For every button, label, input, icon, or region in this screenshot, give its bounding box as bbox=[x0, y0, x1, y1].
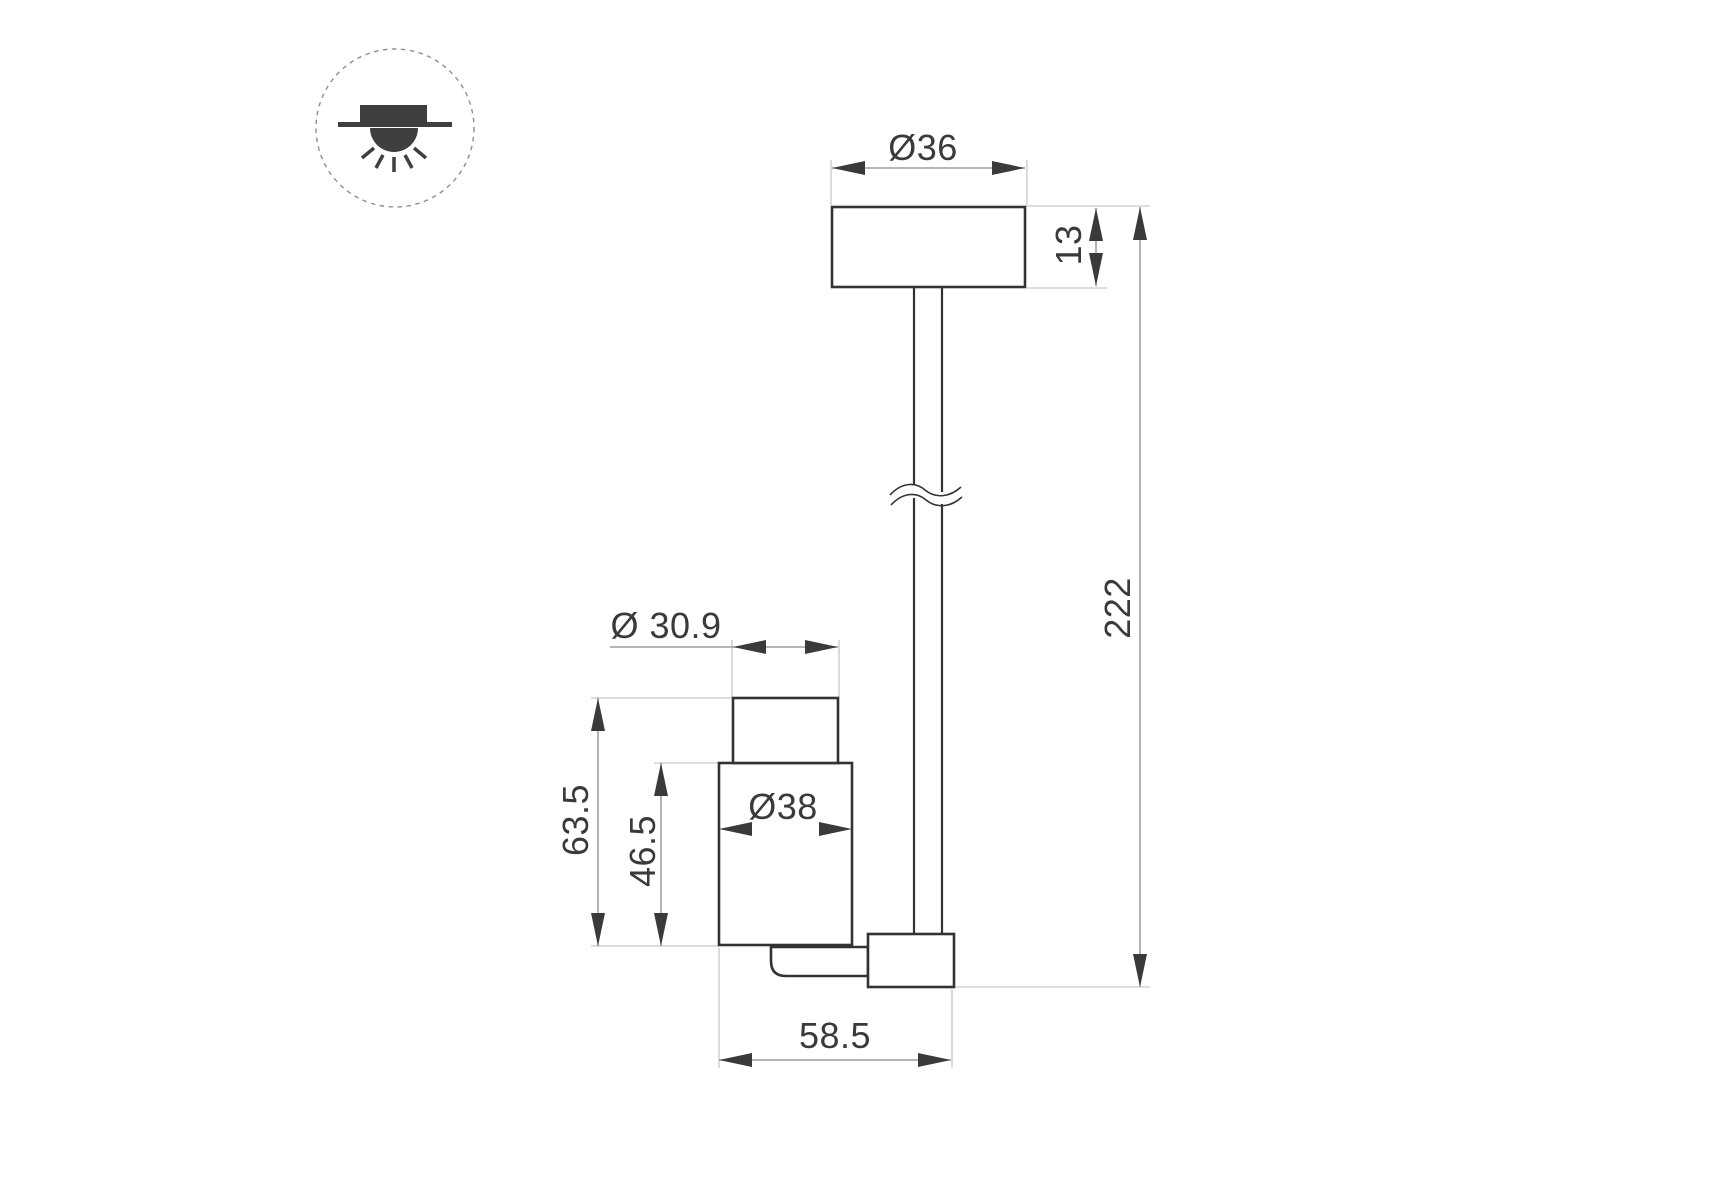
label-canopy-height: 13 bbox=[1048, 224, 1089, 265]
arrow-body-h-top bbox=[654, 763, 668, 796]
arrow-arm-left bbox=[719, 1053, 752, 1067]
fixture-outline bbox=[719, 207, 1025, 987]
arrow-head-h-top bbox=[591, 698, 605, 731]
connector-block bbox=[868, 934, 954, 987]
break-symbol bbox=[890, 484, 962, 505]
arrow-head-h-bottom bbox=[591, 913, 605, 946]
label-overall-length: 222 bbox=[1097, 577, 1138, 639]
label-neck-diameter: Ø 30.9 bbox=[610, 605, 721, 646]
arrow-canopy-h-top bbox=[1089, 208, 1103, 241]
surface-mount-ceiling-light-icon bbox=[316, 49, 474, 207]
label-body-height: 46.5 bbox=[622, 815, 663, 887]
arrow-overall-bottom bbox=[1133, 954, 1147, 987]
label-arm-length: 58.5 bbox=[799, 1015, 871, 1056]
arrow-arm-right bbox=[918, 1053, 951, 1067]
arrow-overall-top bbox=[1133, 207, 1147, 240]
arrow-body-h-bottom bbox=[654, 913, 668, 946]
drawing-page: Ø36 13 222 Ø 30.9 Ø38 63.5 46.5 58.5 bbox=[0, 0, 1715, 1200]
icon-mount-box bbox=[360, 105, 427, 123]
icon-ceiling-line bbox=[338, 122, 452, 127]
ceiling-canopy bbox=[832, 207, 1025, 287]
arrow-neck-dia-left bbox=[733, 640, 766, 654]
arrow-neck-dia-right bbox=[805, 640, 838, 654]
technical-drawing-canvas: Ø36 13 222 Ø 30.9 Ø38 63.5 46.5 58.5 bbox=[0, 0, 1715, 1200]
elbow-arm bbox=[771, 947, 868, 976]
arrow-canopy-h-bottom bbox=[1089, 253, 1103, 286]
lamp-head-neck bbox=[733, 698, 838, 763]
icon-lamp-dome bbox=[370, 128, 418, 152]
label-head-total-height: 63.5 bbox=[555, 784, 596, 856]
arrow-canopy-dia-right bbox=[992, 161, 1025, 175]
suspension-rod bbox=[914, 287, 942, 936]
arrow-canopy-dia-left bbox=[832, 161, 865, 175]
label-canopy-diameter: Ø36 bbox=[888, 127, 958, 168]
label-body-diameter: Ø38 bbox=[748, 786, 818, 827]
